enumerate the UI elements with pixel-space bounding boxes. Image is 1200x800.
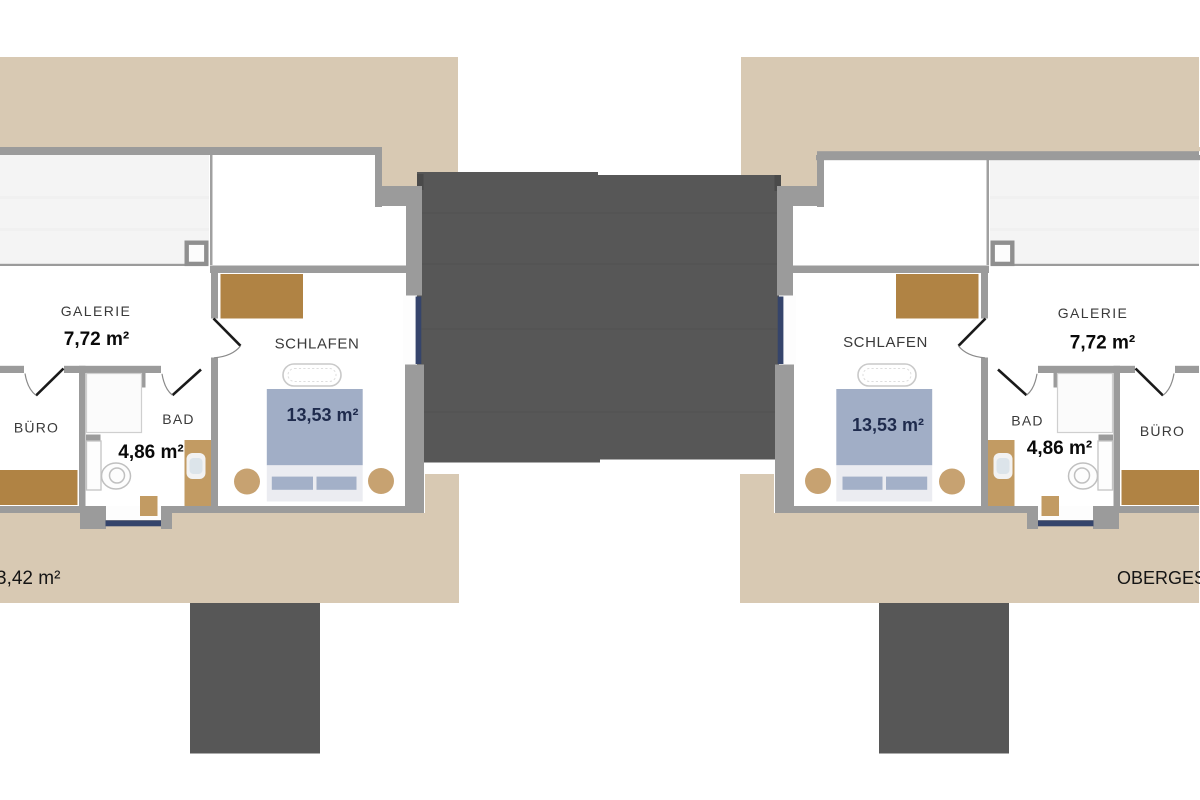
svg-text:4,86 m²: 4,86 m² [118, 442, 183, 463]
svg-text:7,72 m²: 7,72 m² [1070, 333, 1135, 354]
svg-text:SCHLAFEN: SCHLAFEN [843, 334, 928, 351]
svg-text:BAD: BAD [1011, 413, 1043, 429]
svg-text:OBERGESCHOSS: OBERGESCHOSS [1117, 568, 1200, 588]
svg-text:4,86 m²: 4,86 m² [1027, 438, 1092, 459]
svg-text:GALERIE: GALERIE [1058, 305, 1129, 321]
svg-text:13,53 m²: 13,53 m² [852, 415, 924, 435]
svg-text:GALERIE: GALERIE [61, 303, 132, 319]
svg-text:BÜRO: BÜRO [14, 419, 59, 436]
svg-text:13,53 m²: 13,53 m² [286, 405, 358, 425]
svg-text:7,72 m²: 7,72 m² [64, 329, 129, 350]
svg-text:BÜRO: BÜRO [1140, 422, 1185, 439]
svg-text:BAD: BAD [162, 411, 194, 427]
svg-text:SCHLAFEN: SCHLAFEN [275, 336, 360, 353]
svg-text:3,42 m²: 3,42 m² [0, 568, 60, 589]
